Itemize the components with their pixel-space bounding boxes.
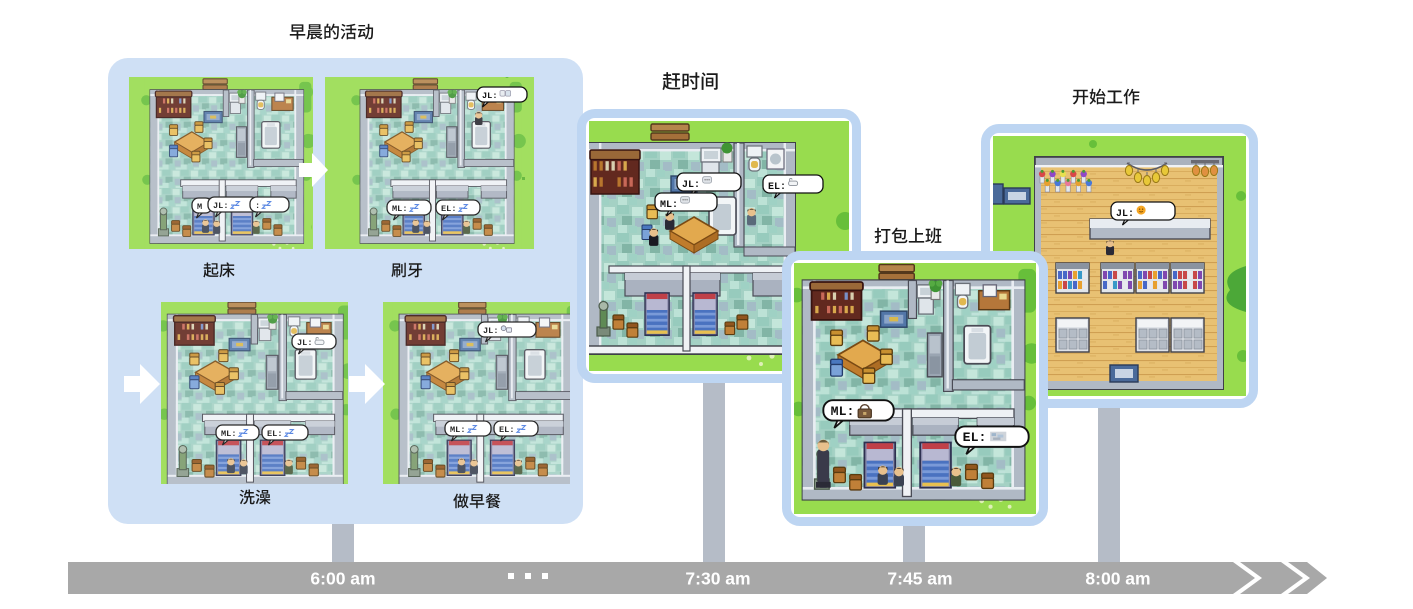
svg-text:JL:: JL: <box>1116 209 1134 220</box>
svg-text:JL:: JL: <box>682 180 700 191</box>
svg-text:7:45 am: 7:45 am <box>887 569 952 589</box>
svg-text:ML:: ML: <box>660 200 678 211</box>
svg-text:6:00 am: 6:00 am <box>310 569 375 589</box>
svg-text:EL:: EL: <box>963 430 987 445</box>
svg-text:7:30 am: 7:30 am <box>685 569 750 589</box>
svg-text:ML:: ML: <box>831 404 855 419</box>
svg-text:8:00 am: 8:00 am <box>1085 569 1150 589</box>
svg-text:EL:: EL: <box>768 182 786 193</box>
svg-text:JL:: JL: <box>482 91 497 101</box>
